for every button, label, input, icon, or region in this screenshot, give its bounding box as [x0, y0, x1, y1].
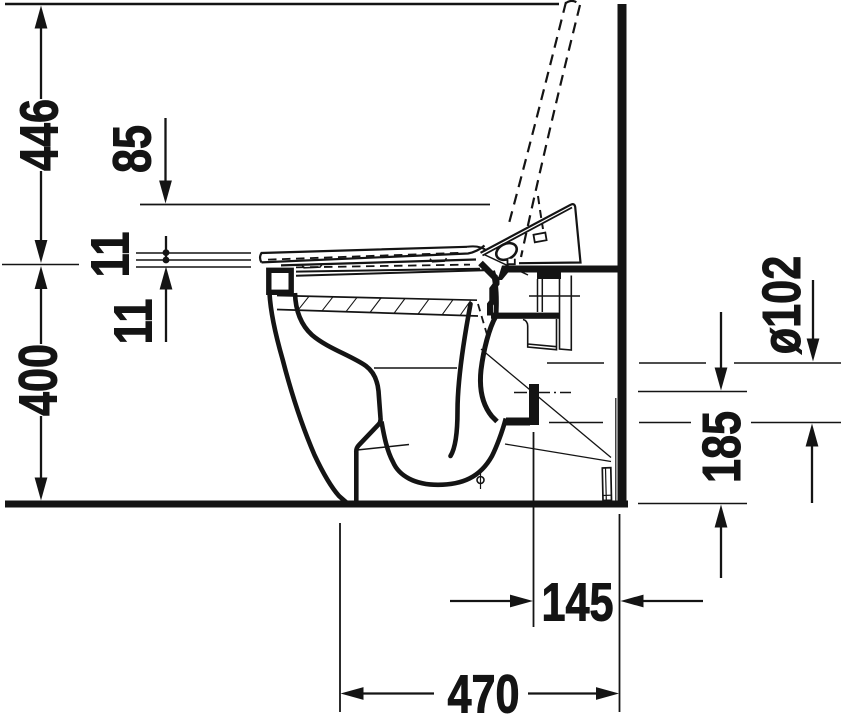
svg-text:85: 85	[103, 125, 163, 173]
svg-text:400: 400	[9, 344, 69, 416]
svg-text:470: 470	[447, 665, 519, 725]
svg-text:ø102: ø102	[753, 256, 813, 354]
svg-text:185: 185	[693, 411, 753, 483]
svg-text:145: 145	[541, 573, 613, 633]
svg-text:11: 11	[104, 299, 164, 345]
svg-text:11: 11	[81, 232, 141, 278]
svg-text:446: 446	[10, 99, 70, 171]
